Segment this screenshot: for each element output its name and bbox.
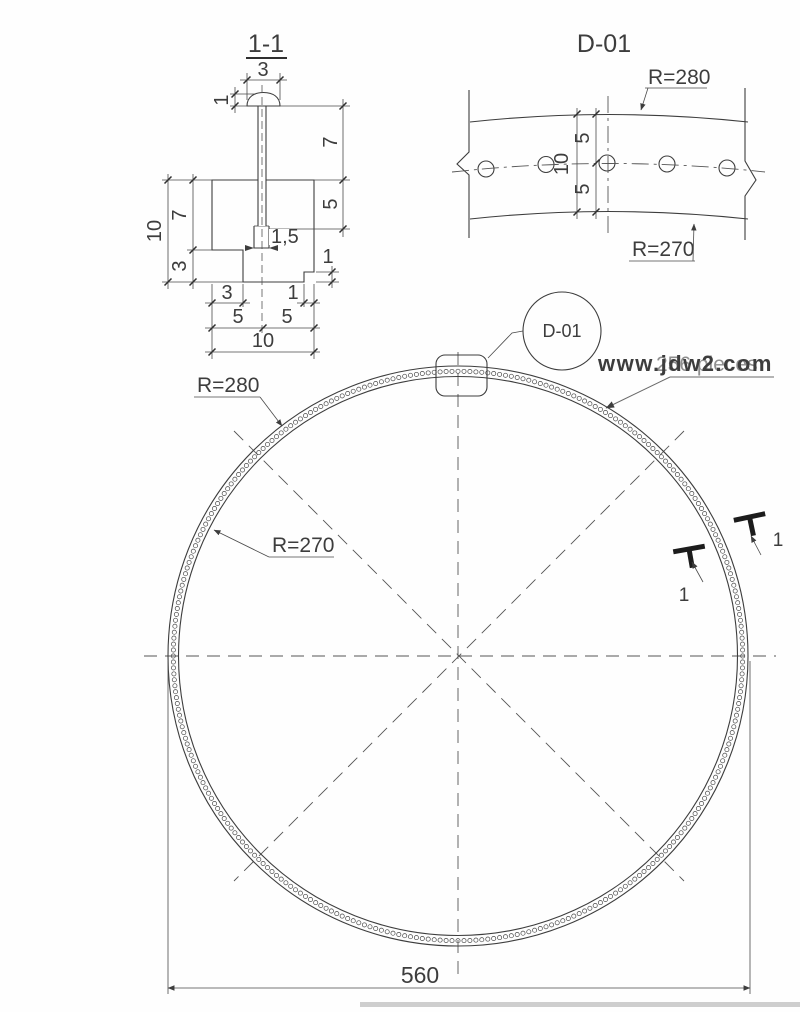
rivet-hole	[642, 869, 646, 873]
rivet-hole	[173, 618, 177, 622]
rivet-hole	[642, 438, 646, 442]
rivet-hole	[555, 921, 559, 925]
rivet-hole	[711, 781, 715, 785]
rivet-hole	[492, 936, 496, 940]
rivet-hole	[329, 909, 333, 913]
rivet-hole	[408, 373, 412, 377]
rivet-hole	[432, 938, 436, 942]
rivet-hole	[509, 374, 513, 378]
rivet-hole	[683, 826, 687, 830]
rivet-hole	[172, 636, 176, 640]
rivet-mark-right-leader	[751, 536, 761, 555]
rivet-hole	[183, 736, 187, 740]
rivet-hole	[187, 560, 191, 564]
rivet-hole	[732, 583, 736, 587]
dim-bottom-right: 5	[281, 306, 292, 328]
rivet-hole	[284, 881, 288, 885]
rivet-hole	[191, 549, 195, 553]
rivet-hole	[265, 866, 269, 870]
rivet-hole	[683, 482, 687, 486]
slot-arrow-left	[245, 245, 254, 251]
rivet-hole	[289, 424, 293, 428]
dim-side-step: 1	[322, 246, 333, 268]
rivet-hole	[185, 566, 189, 570]
rivet-hole	[185, 742, 189, 746]
rivet-hole	[577, 912, 581, 916]
rivet-hole	[515, 932, 519, 936]
dim-bottom-left: 5	[232, 306, 243, 328]
rivet-mark-right-symbol	[734, 514, 769, 539]
rivet-hole	[614, 417, 618, 421]
rivet-hole	[226, 487, 230, 491]
rivet-hole	[637, 873, 641, 877]
rivet-hole	[723, 555, 727, 559]
rivet-hole	[603, 897, 607, 901]
diameter-value: 560	[401, 962, 439, 988]
rivet-hole	[189, 555, 193, 559]
rivet-hole	[733, 589, 737, 593]
rivet-hole	[659, 853, 663, 857]
rivet-hole	[450, 369, 454, 373]
rivet-hole	[385, 378, 389, 382]
rivet-hole	[319, 903, 323, 907]
pieces-note-leader	[606, 377, 670, 408]
rivet-hole	[718, 544, 722, 548]
rivet-hole	[734, 595, 738, 599]
rivet-hole	[179, 589, 183, 593]
rivet-hole	[593, 404, 597, 408]
rivet-hole	[340, 914, 344, 918]
rivet-hole	[637, 435, 641, 439]
rivet-hole	[736, 707, 740, 711]
rivet-hole	[385, 930, 389, 934]
detail-title: D-01	[577, 30, 631, 58]
rivet-hole	[736, 601, 740, 605]
rivet-hole	[498, 372, 502, 376]
rivet-hole	[426, 937, 430, 941]
rivet-hole	[716, 538, 720, 542]
rivet-hole	[206, 791, 210, 795]
rivet-hole	[727, 566, 731, 570]
rivet-hole	[172, 630, 176, 634]
rivet-hole	[509, 934, 513, 938]
rivet-hole	[741, 660, 745, 664]
rivet-hole	[714, 533, 718, 537]
rivet-hole	[728, 572, 732, 576]
rivet-hole	[583, 399, 587, 403]
rivet-hole	[614, 891, 618, 895]
rivet-hole	[229, 826, 233, 830]
rivet-hole	[738, 618, 742, 622]
rivet-hole	[379, 928, 383, 932]
rivet-hole	[180, 725, 184, 729]
rivet-hole	[474, 938, 478, 942]
slot-clearance	[254, 226, 269, 248]
rivet-hole	[187, 748, 191, 752]
rivet-hole	[741, 648, 745, 652]
rivet-hole	[279, 431, 283, 435]
dim-height-upper: 7	[169, 209, 191, 220]
rivet-hole	[279, 877, 283, 881]
rivet-hole	[737, 701, 741, 705]
rivet-hole	[274, 873, 278, 877]
rivet-hole	[659, 455, 663, 459]
rivet-hole	[175, 606, 179, 610]
rivet-hole	[693, 812, 697, 816]
rivet-hole	[182, 731, 186, 735]
rivet-hole	[728, 736, 732, 740]
rivet-hole	[444, 938, 448, 942]
rivet-hole	[703, 796, 707, 800]
rivet-hole	[314, 901, 318, 905]
rivet-hole	[293, 888, 297, 892]
rivet-hole	[733, 719, 737, 723]
rivet-hole	[346, 391, 350, 395]
rivet-hole	[270, 869, 274, 873]
plan-outer-radius-label: R=280	[197, 374, 259, 397]
rivet-hole	[480, 938, 484, 942]
rivet-hole	[705, 791, 709, 795]
detail-view: D-01 5 5 10 R=280 R=270	[452, 30, 765, 261]
rivet-hole	[721, 759, 725, 763]
rivet-hole	[172, 678, 176, 682]
rivet-hole	[244, 844, 248, 848]
rivet-hole	[462, 939, 466, 943]
rivet-hole	[173, 690, 177, 694]
section-dimension-lines	[168, 80, 343, 352]
rivet-hole	[679, 477, 683, 481]
rivet-hole	[420, 936, 424, 940]
rivet-hole	[284, 427, 288, 431]
rivet-hole	[248, 459, 252, 463]
rivet-hole	[693, 496, 697, 500]
rivet-hole	[527, 930, 531, 934]
rivet-hole	[204, 786, 208, 790]
rivet-hole	[734, 713, 738, 717]
rivet-hole	[725, 560, 729, 564]
rivet-hole	[335, 396, 339, 400]
detail-outer-radius-leader	[641, 88, 648, 110]
rivet-hole	[456, 369, 460, 373]
rivet-hole	[739, 624, 743, 628]
rivet-hole	[216, 501, 220, 505]
rivet-hole	[618, 888, 622, 892]
rivet-hole	[618, 420, 622, 424]
rivet-hole	[739, 684, 743, 688]
rivet-hole	[450, 939, 454, 943]
rivet-hole	[544, 925, 548, 929]
rivet-hole	[216, 806, 220, 810]
rivet-hole	[329, 399, 333, 403]
detail-callout-leader	[488, 331, 523, 358]
rivet-hole	[468, 938, 472, 942]
rivet-hole	[237, 835, 241, 839]
rivet-hole	[177, 595, 181, 599]
rivet-hole	[603, 410, 607, 414]
rivet-hole	[174, 612, 178, 616]
rivet-hole	[566, 391, 570, 395]
rivet-hole	[486, 371, 490, 375]
rivet-hole	[324, 402, 328, 406]
dim-slot-width: 1,5	[271, 226, 299, 248]
rivet-hole	[740, 678, 744, 682]
rivet-hole	[222, 816, 226, 820]
detail-inner-arc	[470, 212, 748, 220]
rivet-hole	[503, 935, 507, 939]
technical-drawing: 1-1	[0, 0, 800, 1012]
rivet-hole	[515, 375, 519, 379]
rivet-hole	[588, 906, 592, 910]
rivet-hole	[727, 742, 731, 746]
rivet-hole	[561, 389, 565, 393]
rivet-hole	[492, 371, 496, 375]
rivet-hole	[572, 914, 576, 918]
rivet-hole	[572, 394, 576, 398]
detail-dim-lower: 5	[572, 183, 594, 194]
rivet-hole	[222, 491, 226, 495]
rivet-hole	[723, 753, 727, 757]
rivet-hole	[675, 472, 679, 476]
rivet-hole	[550, 923, 554, 927]
scan-artifact	[360, 1002, 800, 1007]
rivet-hole	[261, 446, 265, 450]
rivet-hole	[740, 672, 744, 676]
rivet-hole	[738, 690, 742, 694]
rivet-hole	[671, 468, 675, 472]
rivet-hole	[533, 928, 537, 932]
plan-view: D-01 R=280 R=270 256 pieces 1 1 5	[144, 292, 783, 994]
rivet-hole	[608, 414, 612, 418]
rivet-hole	[703, 511, 707, 515]
rivet-hole	[183, 572, 187, 576]
rivet-hole	[403, 934, 407, 938]
detail-outer-arc	[470, 115, 748, 123]
rivet-hole	[201, 781, 205, 785]
rivet-hole	[171, 660, 175, 664]
rivet-hole	[521, 931, 525, 935]
rivet-hole	[374, 381, 378, 385]
rivet-hole	[257, 857, 261, 861]
rivet-hole	[711, 527, 715, 531]
rivet-hole	[721, 549, 725, 553]
rivet-hole	[740, 666, 744, 670]
rivet-hole	[668, 463, 672, 467]
rivet-hole	[486, 937, 490, 941]
rivet-hole	[357, 387, 361, 391]
rivet-hole	[293, 420, 297, 424]
rivet-hole	[646, 442, 650, 446]
rivet-hole	[233, 477, 237, 481]
rivet-hole	[623, 884, 627, 888]
rivet-hole	[462, 369, 466, 373]
rivet-hole	[298, 891, 302, 895]
rivet-mark-right-label: 1	[773, 530, 784, 551]
rivet-hole	[738, 696, 742, 700]
rivet-hole	[397, 375, 401, 379]
rivet-hole	[335, 912, 339, 916]
rivet-hole	[408, 935, 412, 939]
rivet-hole	[314, 407, 318, 411]
rivet-hole	[206, 517, 210, 521]
rivet-hole	[175, 701, 179, 705]
dim-height-total: 10	[144, 220, 166, 242]
rivet-hole	[193, 544, 197, 548]
plan-inner-radius-leader	[214, 530, 269, 557]
rivet-hole	[229, 482, 233, 486]
rivet-hole	[633, 877, 637, 881]
rivet-hole	[598, 407, 602, 411]
rivet-hole	[628, 427, 632, 431]
rivet-hole	[705, 517, 709, 521]
rivet-hole	[171, 642, 175, 646]
dim-bottom-total: 10	[252, 330, 274, 352]
rivet-hole	[668, 844, 672, 848]
rivet-hole	[324, 906, 328, 910]
rivet-hole	[308, 410, 312, 414]
rivet-hole	[577, 396, 581, 400]
rivet-hole	[204, 522, 208, 526]
plan-outer-radius-leader	[260, 397, 282, 426]
rivet-hole	[699, 506, 703, 510]
rivet-hole	[179, 719, 183, 723]
rivet-hole	[588, 402, 592, 406]
rivet-hole	[177, 713, 181, 717]
rivet-hole	[212, 506, 216, 510]
plan-inner-radius-label: R=270	[272, 534, 334, 557]
section-title: 1-1	[248, 30, 284, 58]
rivet-hole	[480, 370, 484, 374]
rivet-hole	[714, 775, 718, 779]
rivet-hole	[655, 451, 659, 455]
dim-head-height: 1	[211, 94, 233, 105]
rivet-hole	[730, 731, 734, 735]
rivet-hole	[686, 821, 690, 825]
rivet-hole	[196, 538, 200, 542]
rivet-hole	[173, 684, 177, 688]
rivet-hole	[201, 527, 205, 531]
rivet-hole	[544, 383, 548, 387]
dim-height-lower: 3	[169, 260, 191, 271]
rivet-hole	[651, 446, 655, 450]
rivet-hole	[172, 672, 176, 676]
rivet-hole	[420, 371, 424, 375]
rivet-hole	[696, 806, 700, 810]
rivet-hole	[191, 759, 195, 763]
rivet-hole	[521, 377, 525, 381]
rivet-hole	[655, 857, 659, 861]
rivet-hole	[690, 491, 694, 495]
rivet-hole	[253, 455, 257, 459]
rivet-hole	[362, 385, 366, 389]
rivet-hole	[357, 921, 361, 925]
rivet-hole	[193, 764, 197, 768]
rivet-hole	[708, 786, 712, 790]
rivet-hole	[298, 417, 302, 421]
rivet-hole	[623, 424, 627, 428]
rivet-hole	[716, 770, 720, 774]
rivet-hole	[237, 472, 241, 476]
rivet-hole	[196, 770, 200, 774]
rivet-hole	[346, 916, 350, 920]
rivet-hole	[738, 612, 742, 616]
rivet-hole	[426, 371, 430, 375]
rivet-hole	[189, 753, 193, 757]
detail-dim-total: 10	[551, 153, 573, 175]
dim-shank-exposed: 7	[320, 136, 342, 147]
rivet-hole	[351, 919, 355, 923]
rivet-hole	[527, 378, 531, 382]
rivet-hole	[240, 840, 244, 844]
rivet-hole	[663, 849, 667, 853]
rivet-hole	[374, 926, 378, 930]
rivet-hole	[261, 861, 265, 865]
rivet-hole	[690, 816, 694, 820]
rivet-hole	[474, 370, 478, 374]
detail-dim-upper: 5	[572, 132, 594, 143]
rivet-hole	[362, 923, 366, 927]
rivet-hole	[289, 884, 293, 888]
rivet-hole	[679, 831, 683, 835]
rivet-hole	[732, 725, 736, 729]
rivet-hole	[583, 909, 587, 913]
rivet-hole	[219, 812, 223, 816]
rivet-hole	[219, 496, 223, 500]
rivet-hole	[368, 383, 372, 387]
rivet-mark-left-label: 1	[679, 585, 690, 606]
section-dimension-texts: 3 1 7 5 1,5 10 7 3 1 3 1 5 5 10	[144, 59, 342, 352]
rivet-hole	[198, 533, 202, 537]
rivet-hole	[340, 394, 344, 398]
rivet-hole	[212, 801, 216, 805]
rivet-hole	[538, 926, 542, 930]
rivet-hole	[176, 707, 180, 711]
rivet-hole	[198, 775, 202, 779]
rivet-hole	[628, 881, 632, 885]
rivet-hole	[740, 642, 744, 646]
detail-inner-radius-label: R=270	[632, 238, 694, 261]
detail-outer-radius-label: R=280	[648, 66, 710, 89]
rivet-hole	[538, 381, 542, 385]
rivet-hole	[274, 435, 278, 439]
rivet-hole	[248, 849, 252, 853]
rivet-mark-left-symbol	[673, 546, 708, 570]
section-dimension-ticks	[165, 77, 347, 356]
detail-break-left	[457, 90, 469, 238]
rivet-hole	[593, 903, 597, 907]
rivet-hole	[303, 414, 307, 418]
rivet-hole	[699, 801, 703, 805]
section-view: 1-1	[144, 30, 350, 359]
rivet-hole	[391, 931, 395, 935]
rivet-hole	[566, 916, 570, 920]
rivet-hole	[265, 442, 269, 446]
rivet-hole	[174, 696, 178, 700]
rivet-hole	[403, 374, 407, 378]
rivet-hole	[737, 606, 741, 610]
rivet-hole	[468, 369, 472, 373]
rivet-hole	[391, 377, 395, 381]
rivet-hole	[438, 938, 442, 942]
rivet-hole	[561, 919, 565, 923]
rivet-hole	[696, 501, 700, 505]
detail-callout-box	[436, 355, 487, 396]
rivet-hole	[244, 463, 248, 467]
rivet-hole	[608, 894, 612, 898]
rivet-hole	[257, 451, 261, 455]
rivet-hole	[303, 894, 307, 898]
rivet-hole	[308, 897, 312, 901]
drawing-sheet: 1-1	[0, 0, 800, 1012]
